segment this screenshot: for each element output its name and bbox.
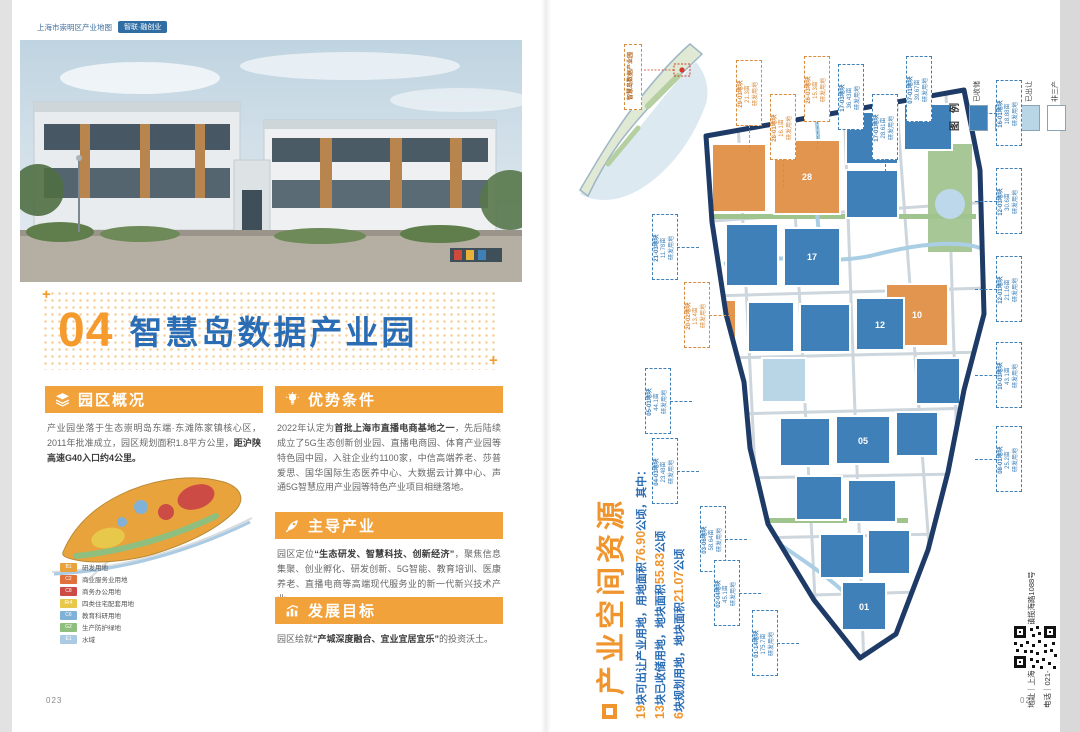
- legend-label: 四类住宅配套用地: [82, 598, 134, 608]
- section-title: 主导产业: [308, 515, 376, 536]
- legend-swatch: G2: [60, 623, 77, 632]
- parcel-callout: 12-01地块21.16亩研发用地: [996, 256, 1022, 322]
- park-photo: [20, 40, 522, 282]
- legend-swatch: [969, 105, 988, 131]
- svg-text:01: 01: [859, 602, 869, 612]
- legend-swatch: B1: [60, 563, 77, 572]
- legend-label: 商业服务业用地: [82, 574, 128, 584]
- section-industries: 主导产业 园区定位“生态研发、智慧科技、创新经济”，聚焦信息集聚、创业孵化、研发…: [275, 512, 503, 606]
- legend-row: Rr4四类住宅配套用地: [60, 598, 134, 608]
- legend-label: 生产防护绿地: [82, 622, 121, 632]
- body-text: 2022年认定为: [277, 423, 334, 433]
- doc-header: 上海市崇明区产业地图 智联·融创业: [37, 21, 167, 33]
- parcel-callout: 17-03地块36.43亩研发用地: [838, 64, 864, 130]
- legend-swatch: [1021, 105, 1040, 131]
- bar-chart-icon: [285, 603, 300, 618]
- inset-callout: 智慧岛数据产业园: [624, 44, 642, 110]
- parcel-callout: 16-01地块18.88亩研发用地: [996, 80, 1022, 146]
- page-number-left: 023: [46, 696, 62, 705]
- parcel-callout: 02-04地块45.1亩研发用地: [714, 560, 740, 626]
- section-number: 04: [58, 303, 113, 358]
- svg-text:10: 10: [912, 310, 922, 320]
- plus-icon: +: [489, 352, 498, 369]
- body-text-bold: 首批上海市直播电商基地之一: [334, 423, 455, 433]
- section-advantages-body: 2022年认定为首批上海市直播电商基地之一，先后陆续成立了5G生态创新创业园、直…: [277, 421, 501, 495]
- doc-tag: 智联·融创业: [118, 21, 167, 33]
- body-text-bold: “产城深度融合、宜业宜居宜乐”: [313, 634, 439, 644]
- parcel-callout: 07-01地块39.67亩研发用地: [906, 56, 932, 122]
- parcel-callout: 21-03地块11.78亩研发用地: [652, 214, 678, 280]
- legend-swatch: Rr4: [60, 599, 77, 608]
- inset-callout-label: 智慧岛数据产业园: [625, 45, 639, 107]
- section-overview-header: 园区概况: [45, 386, 263, 413]
- zoning-legend: B1研发用地 C2商业服务业用地 C8商务办公用地 Rr4四类住宅配套用地 C6…: [60, 562, 134, 646]
- legend-row: C8商务办公用地: [60, 586, 134, 596]
- body-text: 园区定位: [277, 549, 314, 559]
- section-title: 优势条件: [308, 389, 376, 410]
- lightbulb-icon: [285, 392, 300, 407]
- body-text: ，先后陆续成立了5G生态创新创业园、直播电商园、体育产业园等特色园中园，入驻企业…: [277, 423, 501, 492]
- legend-row: C6教育科研用地: [60, 610, 134, 620]
- parcel-callout: 10-03地块43.1亩研发用地: [996, 342, 1022, 408]
- qr-code: [1012, 624, 1058, 670]
- parcel-callout: 29-03地块21.3亩研发用地: [736, 60, 762, 126]
- legend-label: 教育科研用地: [82, 610, 121, 620]
- legend-label: 商务办公用地: [82, 586, 121, 596]
- rocket-icon: [285, 518, 300, 533]
- space-resources-title: 产业空间资源: [588, 424, 630, 719]
- square-bullet-icon: [602, 704, 617, 719]
- svg-text:12: 12: [875, 320, 885, 330]
- parcel-callout: 01-14地块175.7亩研发用地: [752, 610, 778, 676]
- legend-item: 非三产: [1047, 58, 1066, 131]
- parcel-callout: 20-02地块13.4亩研发用地: [684, 282, 710, 348]
- legend-row: B1研发用地: [60, 562, 134, 572]
- legend-label: 水域: [82, 634, 95, 644]
- legend-label: 非三产: [1050, 58, 1060, 102]
- parcel-callout: 28-01地块16.1亩研发用地: [770, 94, 796, 160]
- parcel-callout: 04-03地块23.48亩研发用地: [652, 438, 678, 504]
- plus-icon: +: [42, 286, 51, 303]
- page-number-right: 024: [1020, 696, 1036, 705]
- parcel-callout: 05-01地块44.1亩研发用地: [645, 368, 671, 434]
- parcel-callout: 26-03地块15.3亩研发用地: [804, 56, 830, 122]
- brochure-spread: 上海市崇明区产业地图 智联·融创业: [0, 0, 1080, 732]
- map-legend-title: 图例: [946, 61, 962, 131]
- legend-swatch: E1: [60, 635, 77, 644]
- legend-row: E1水域: [60, 634, 134, 644]
- page-title-block: 04 智慧岛数据产业园: [42, 290, 498, 370]
- page-edge-left: [0, 0, 12, 732]
- body-text: 园区绘就: [277, 634, 313, 644]
- body-text: 产业园坐落于生态崇明岛东端·东滩陈家镇核心区，2011年批准成立，园区规划面积1…: [47, 423, 261, 448]
- parcel-callout: 17-01地块28.61亩研发用地: [872, 94, 898, 160]
- section-goals-header: 发展目标: [275, 597, 503, 624]
- legend-label: 研发用地: [82, 562, 108, 572]
- body-text: 的投资沃土。: [439, 634, 493, 644]
- section-advantages-header: 优势条件: [275, 386, 503, 413]
- section-title: 发展目标: [308, 600, 376, 621]
- section-goals: 发展目标 园区绘就“产城深度融合、宜业宜居宜乐”的投资沃土。: [275, 597, 503, 647]
- legend-row: G2生产防护绿地: [60, 622, 134, 632]
- svg-text:17: 17: [807, 252, 817, 262]
- legend-row: C2商业服务业用地: [60, 574, 134, 584]
- parcel-callout: 08-01地块25.2亩研发用地: [996, 426, 1022, 492]
- section-advantages: 优势条件 2022年认定为首批上海市直播电商基地之一，先后陆续成立了5G生态创新…: [275, 386, 503, 495]
- doc-title: 上海市崇明区产业地图: [37, 22, 112, 33]
- parcel-callout: 12-03地块30.6亩研发用地: [996, 168, 1022, 234]
- svg-text:05: 05: [858, 436, 868, 446]
- section-goals-body: 园区绘就“产城深度融合、宜业宜居宜乐”的投资沃土。: [277, 632, 501, 647]
- svg-text:28: 28: [802, 172, 812, 182]
- legend-swatch: C6: [60, 611, 77, 620]
- page-gutter: [541, 0, 551, 732]
- legend-item: 已收储: [969, 58, 988, 131]
- legend-label: 已收储: [972, 58, 982, 102]
- stat-line: 19块可出让产业用地，用地面积76.90公顷，其中：: [633, 424, 649, 719]
- layers-icon: [55, 392, 70, 407]
- vertical-title-text: 产业空间资源: [588, 497, 630, 695]
- legend-item: 已出让: [1021, 58, 1040, 131]
- legend-swatch: [1047, 105, 1066, 131]
- body-text-bold: “生态研发、智慧科技、创新经济”: [314, 549, 454, 559]
- page-title: 智慧岛数据产业园: [129, 306, 417, 354]
- section-industries-header: 主导产业: [275, 512, 503, 539]
- legend-label: 已出让: [1024, 58, 1034, 102]
- legend-swatch: C2: [60, 575, 77, 584]
- legend-swatch: C8: [60, 587, 77, 596]
- section-title: 园区概况: [78, 389, 146, 410]
